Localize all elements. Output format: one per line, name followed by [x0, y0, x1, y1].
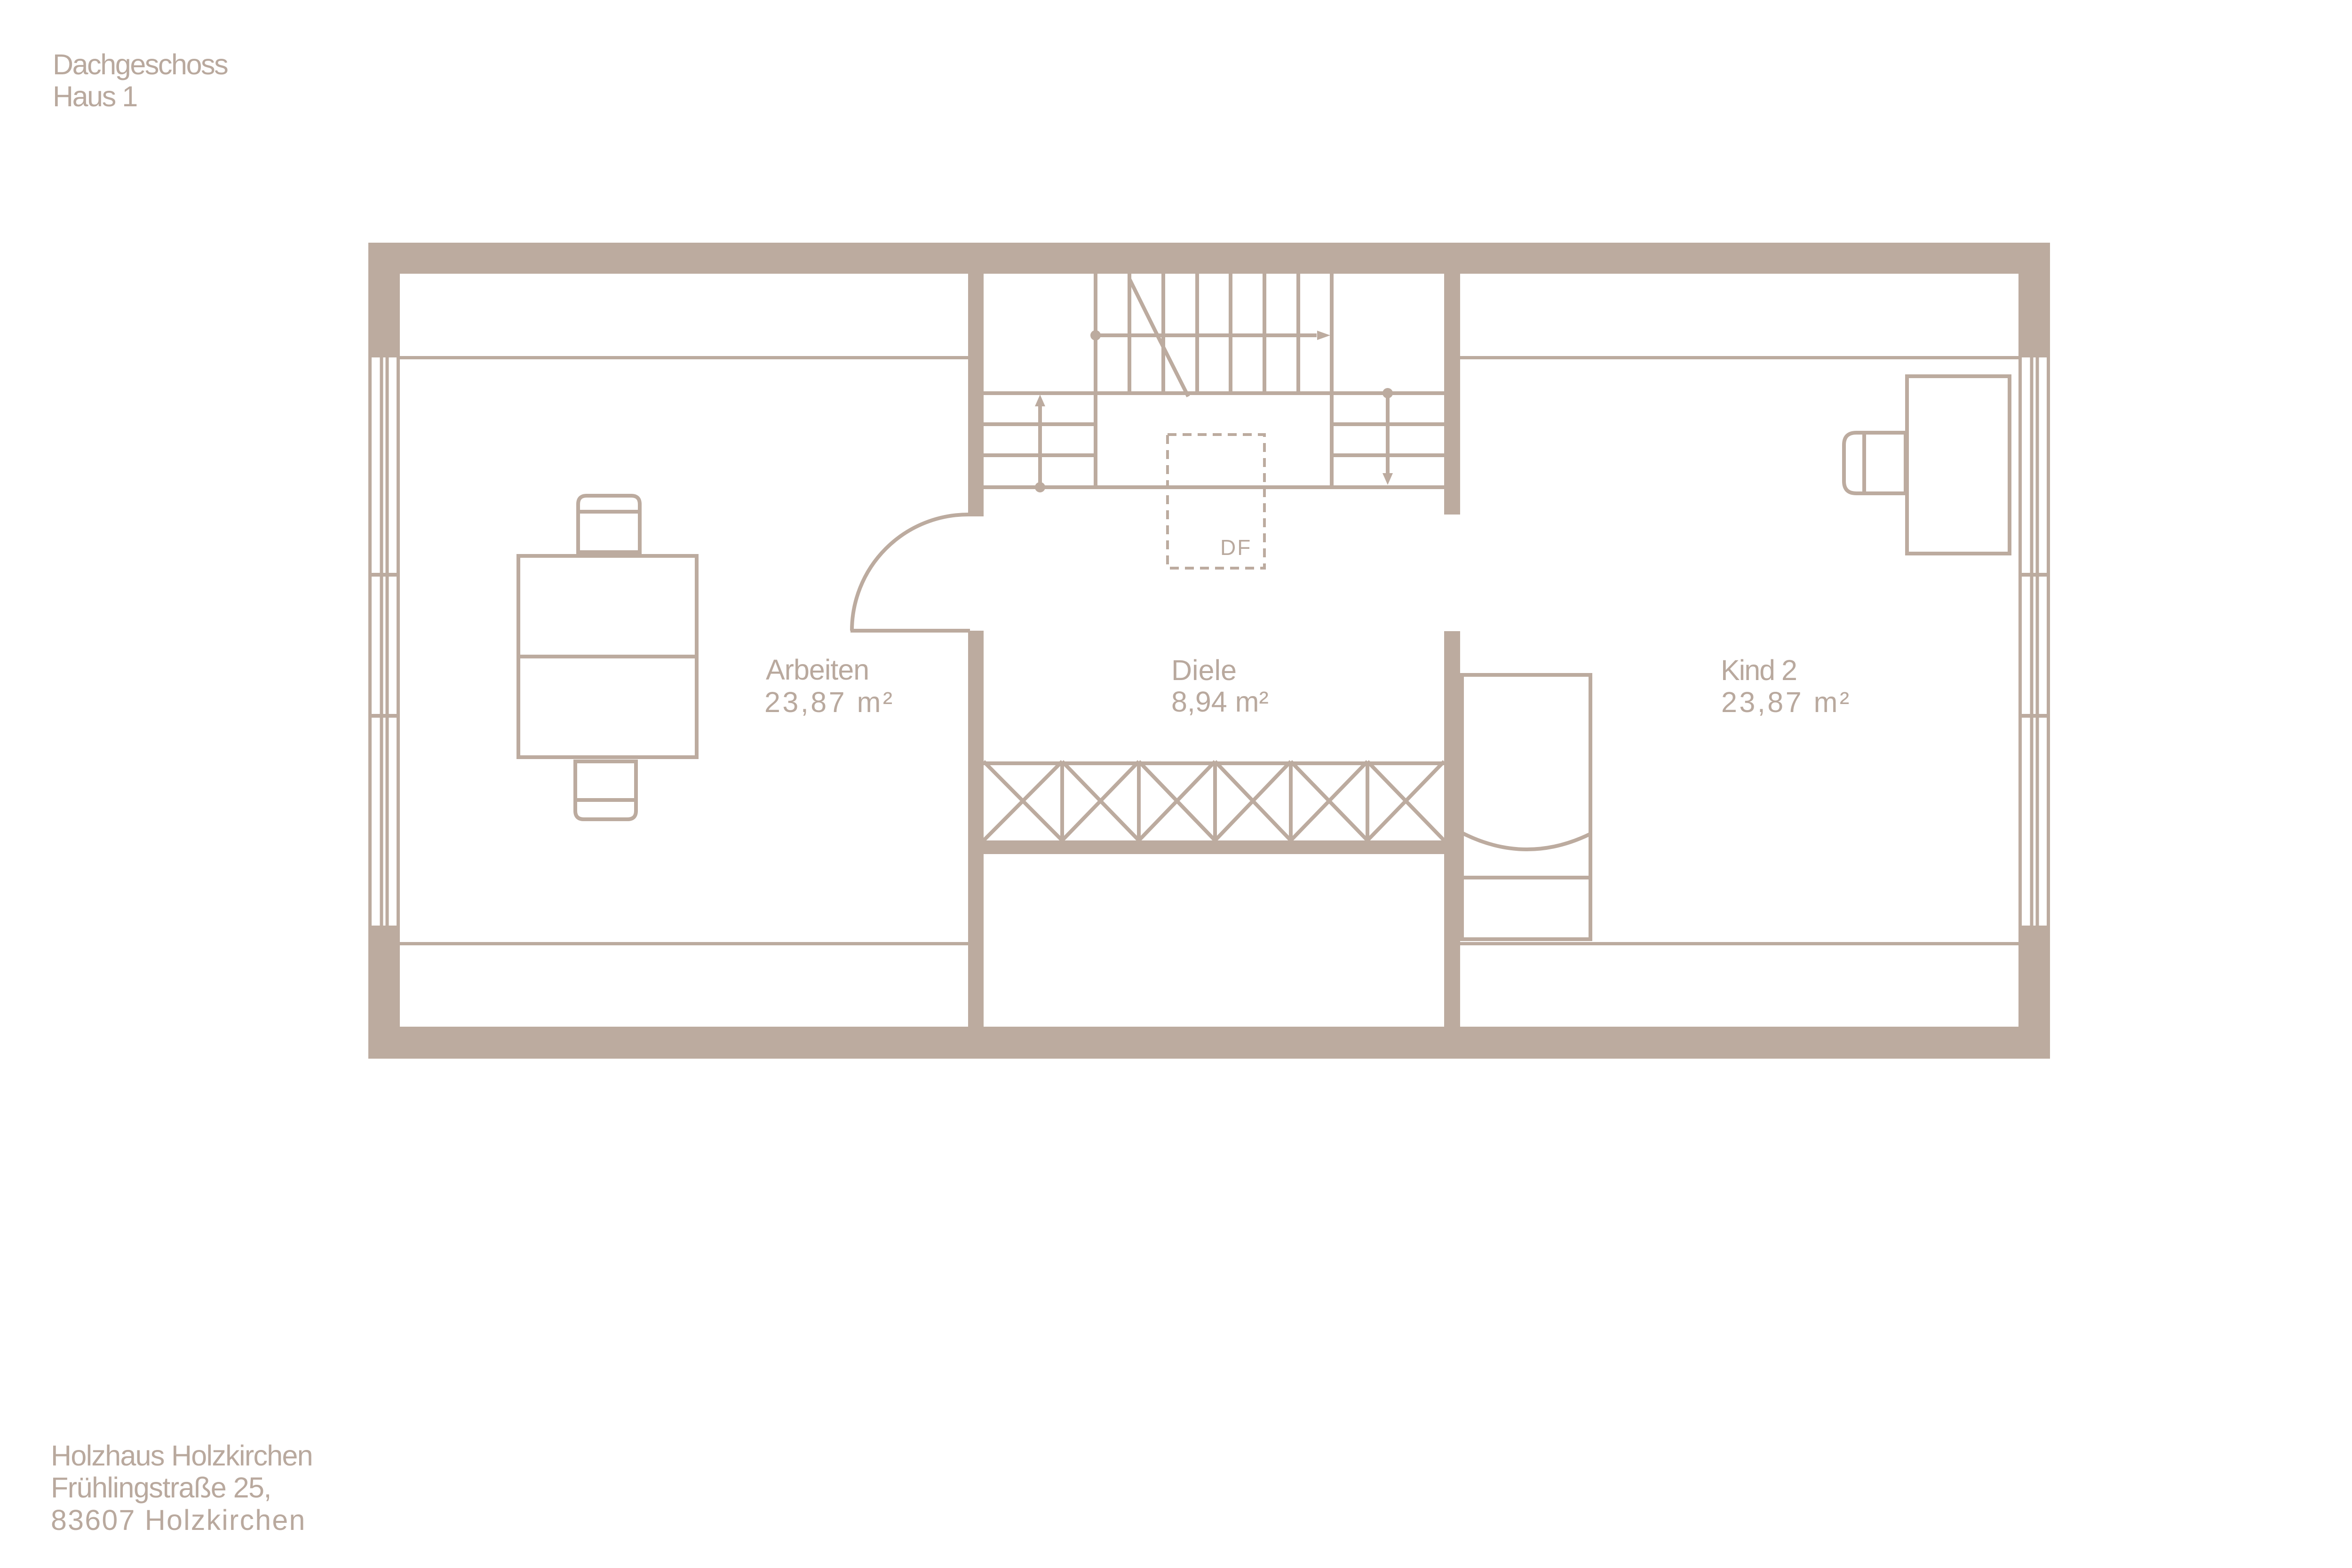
svg-text:23,87 m²: 23,87 m²: [764, 686, 895, 718]
svg-text:Diele: Diele: [1171, 654, 1237, 686]
svg-text:23,87 m²: 23,87 m²: [1721, 686, 1851, 718]
svg-text:Arbeiten: Arbeiten: [766, 654, 869, 686]
svg-text:DF: DF: [1220, 535, 1252, 560]
svg-text:Holzhaus Holzkirchen: Holzhaus Holzkirchen: [51, 1440, 312, 1472]
svg-text:Haus 1: Haus 1: [53, 80, 137, 112]
svg-text:Kind 2: Kind 2: [1721, 654, 1796, 686]
svg-text:Frühlingstraße 25,: Frühlingstraße 25,: [51, 1472, 271, 1504]
svg-text:Dachgeschoss: Dachgeschoss: [53, 48, 228, 80]
svg-text:83607 Holzkirchen: 83607 Holzkirchen: [51, 1504, 306, 1536]
svg-text:8,94 m²: 8,94 m²: [1171, 686, 1269, 718]
